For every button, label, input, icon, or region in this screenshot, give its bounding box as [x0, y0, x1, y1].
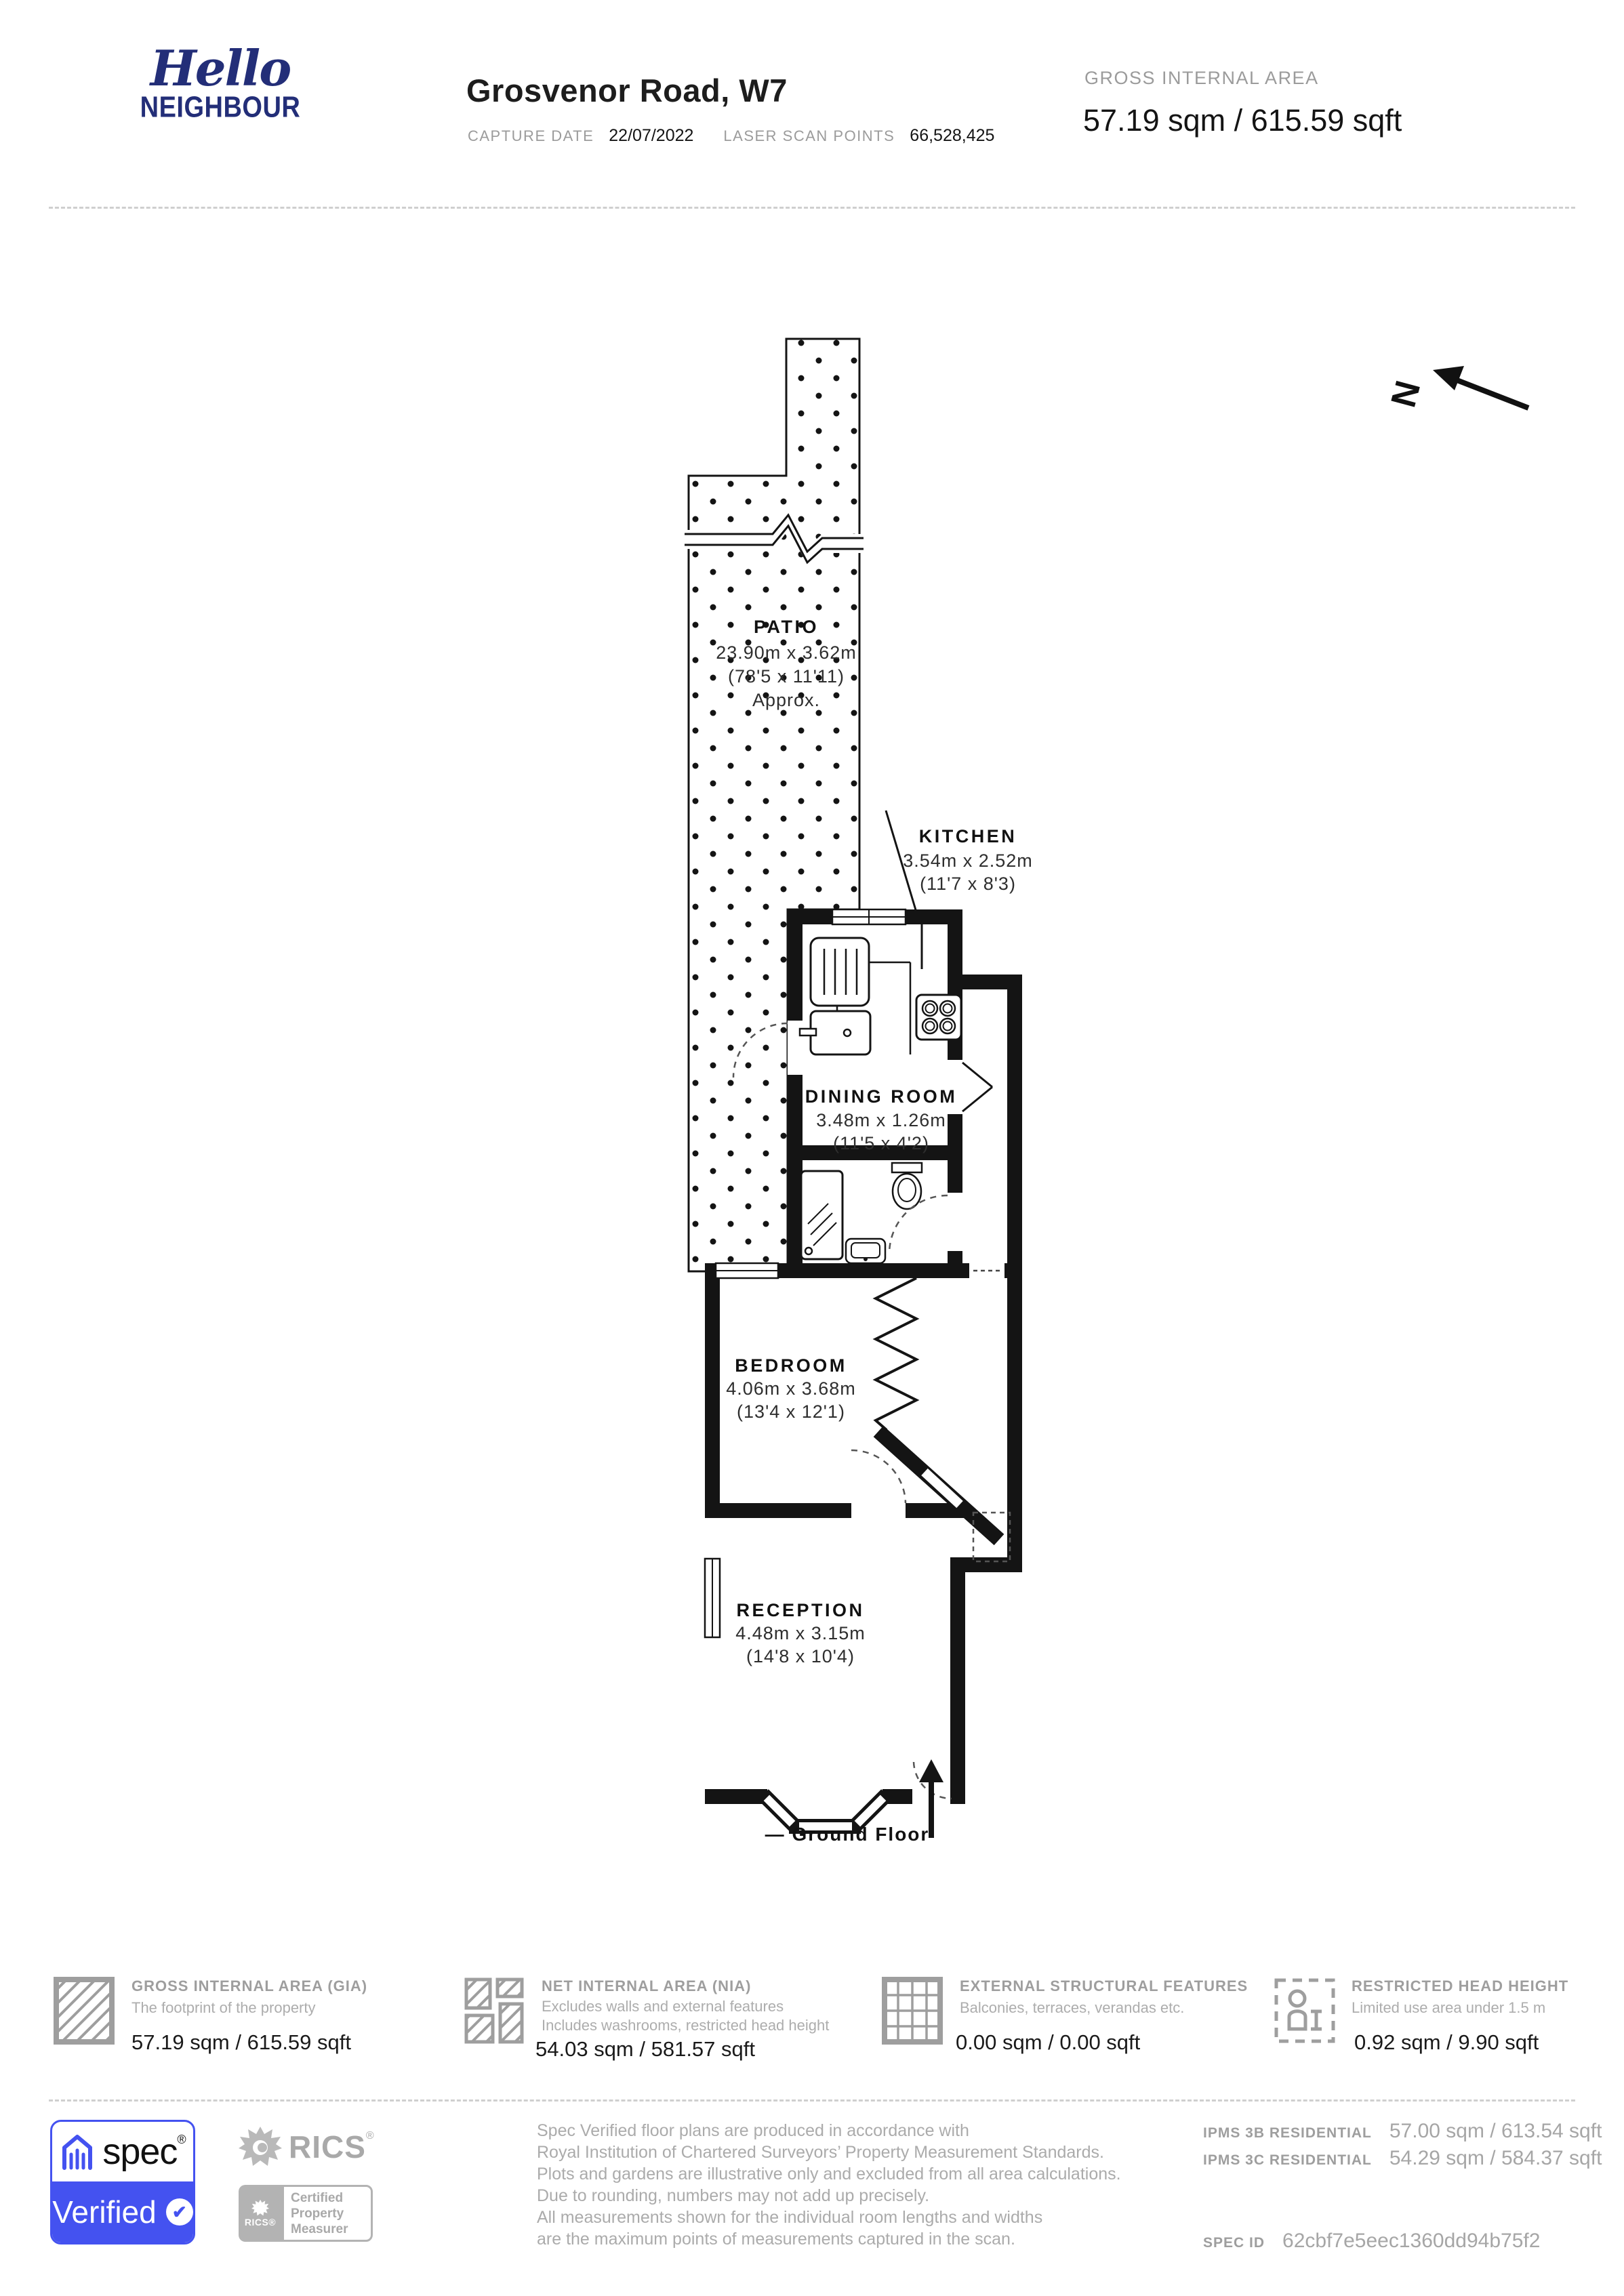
spec-id-label: SPEC ID	[1203, 2235, 1265, 2251]
ipms-3b-row: IPMS 3B RESIDENTIAL 57.00 sqm / 613.54 s…	[1203, 2120, 1602, 2143]
legend-nia-sub2: Includes washrooms, restricted head heig…	[542, 2017, 829, 2034]
gross-internal-area-value: 57.19 sqm / 615.59 sqft	[1083, 103, 1402, 138]
ipms-3c-label: IPMS 3C RESIDENTIAL	[1203, 2152, 1372, 2169]
legend-nia: NET INTERNAL AREA (NIA) Excludes walls a…	[463, 1976, 829, 2045]
legend-gia-title: GROSS INTERNAL AREA (GIA)	[131, 1977, 367, 1995]
kitchen-name: KITCHEN	[919, 826, 1017, 846]
disclaimer-line: are the maximum points of measurements c…	[537, 2228, 1121, 2250]
spec-reg-mark: ®	[177, 2133, 186, 2147]
laser-scan-value: 66,528,425	[910, 126, 994, 146]
rics-reg-mark: ®	[366, 2130, 374, 2142]
disclaimer-text: Spec Verified floor plans are produced i…	[537, 2120, 1121, 2250]
ipms-3c-value: 54.29 sqm / 584.37 sqft	[1389, 2147, 1602, 2170]
dining-imperial: (11'5 x 4'2)	[833, 1133, 929, 1153]
patio-metric: 23.90m x 3.62m	[716, 642, 857, 663]
rics-badge-brand: RICS®	[245, 2217, 276, 2228]
rics-certified-badge: RICS® Certified Property Measurer	[239, 2185, 401, 2242]
legend-rhh-value: 0.92 sqm / 9.90 sqft	[1354, 2030, 1539, 2055]
north-arrow: N	[1383, 347, 1552, 435]
patio-imperial: (78'5 x 11'11)	[728, 666, 845, 686]
legend-esf-sub: Balconies, terraces, verandas etc.	[960, 1999, 1248, 2017]
page-title: Grosvenor Road, W7	[466, 72, 788, 109]
rics-block: RICS ® RICS® Certified Property Measurer	[239, 2120, 401, 2242]
legend-nia-value: 54.03 sqm / 581.57 sqft	[535, 2037, 755, 2062]
spec-verified-text: Verified	[52, 2194, 156, 2230]
rics-badge-line1: Certified	[291, 2190, 371, 2206]
gross-internal-area-label: GROSS INTERNAL AREA	[1084, 68, 1319, 89]
bedroom-name: BEDROOM	[735, 1355, 847, 1376]
spec-id-row: SPEC ID 62cbf7e5eec1360dd94b75f2	[1203, 2230, 1540, 2253]
rics-badge-line3: Measurer	[291, 2221, 371, 2237]
capture-meta-row: CAPTURE DATE 22/07/2022 LASER SCAN POINT…	[468, 126, 994, 146]
floorplan-svg: PATIO 23.90m x 3.62m (78'5 x 11'11) Appr…	[644, 319, 1084, 1884]
dining-name: DINING ROOM	[805, 1086, 958, 1107]
legend-gia-value: 57.19 sqm / 615.59 sqft	[131, 2030, 351, 2055]
rics-badge-lion-icon	[251, 2199, 269, 2217]
legend-nia-sub1: Excludes walls and external features	[542, 1998, 829, 2015]
logo-neighbour-text: NEIGHBOUR	[129, 91, 312, 125]
logo-hello-text: Hello	[129, 45, 312, 92]
kitchen-metric: 3.54m x 2.52m	[903, 850, 1033, 871]
spec-house-icon	[59, 2133, 96, 2171]
legend-rhh-sub: Limited use area under 1.5 m	[1352, 1999, 1568, 2017]
esf-grid-icon	[881, 1976, 943, 2045]
laser-scan-label: LASER SCAN POINTS	[723, 127, 895, 145]
spec-id-value: 62cbf7e5eec1360dd94b75f2	[1282, 2230, 1540, 2253]
disclaimer-line: Royal Institution of Chartered Surveyors…	[537, 2141, 1121, 2163]
header-divider	[49, 207, 1575, 209]
legend-nia-title: NET INTERNAL AREA (NIA)	[542, 1977, 829, 1995]
bedroom-metric: 4.06m x 3.68m	[726, 1378, 856, 1399]
spec-brand-text: spec	[102, 2131, 177, 2173]
rics-brand-text: RICS	[289, 2129, 366, 2165]
north-label: N	[1384, 377, 1429, 411]
disclaimer-line: Plots and gardens are illustrative only …	[537, 2163, 1121, 2185]
ipms-3b-value: 57.00 sqm / 613.54 sqft	[1389, 2120, 1602, 2143]
hob-icon	[916, 995, 961, 1040]
legend-gia-sub: The footprint of the property	[131, 1999, 367, 2017]
rhh-person-icon	[1273, 1976, 1335, 2045]
legend-esf-value: 0.00 sqm / 0.00 sqft	[956, 2030, 1140, 2055]
shower-icon	[801, 1171, 843, 1259]
patio-note: Approx.	[752, 690, 820, 710]
hello-neighbour-logo: Hello NEIGHBOUR	[129, 45, 312, 123]
capture-date-label: CAPTURE DATE	[468, 127, 594, 145]
ipms-3c-row: IPMS 3C RESIDENTIAL 54.29 sqm / 584.37 s…	[1203, 2147, 1602, 2170]
toilet-icon	[892, 1163, 922, 1209]
dining-metric: 3.48m x 1.26m	[816, 1110, 946, 1130]
patio-name: PATIO	[754, 617, 819, 637]
reception-name: RECEPTION	[736, 1600, 864, 1620]
disclaimer-line: All measurements shown for the individua…	[537, 2207, 1121, 2228]
verified-check-icon: ✔	[166, 2198, 193, 2226]
spec-verified-badge: spec ® Verified ✔	[50, 2120, 195, 2244]
capture-date-value: 22/07/2022	[609, 126, 693, 146]
gia-hatch-icon	[53, 1976, 115, 2045]
legend-rhh-title: RESTRICTED HEAD HEIGHT	[1352, 1977, 1568, 1995]
rics-badge-line2: Property	[291, 2206, 371, 2221]
nia-maze-icon	[463, 1976, 525, 2045]
reception-metric: 4.48m x 3.15m	[735, 1623, 866, 1643]
basin-icon	[846, 1239, 885, 1263]
legend-esf-title: EXTERNAL STRUCTURAL FEATURES	[960, 1977, 1248, 1995]
reception-imperial: (14'8 x 10'4)	[746, 1646, 855, 1666]
bedroom-imperial: (13'4 x 12'1)	[737, 1401, 845, 1422]
disclaimer-line: Spec Verified floor plans are produced i…	[537, 2120, 1121, 2141]
disclaimer-line: Due to rounding, numbers may not add up …	[537, 2185, 1121, 2207]
kitchen-sink-icon	[800, 938, 870, 1054]
floor-label: — Ground Floor	[765, 1824, 930, 1845]
rics-lion-icon	[239, 2120, 282, 2174]
ipms-3b-label: IPMS 3B RESIDENTIAL	[1203, 2125, 1372, 2141]
footer-divider	[49, 2099, 1575, 2102]
kitchen-imperial: (11'7 x 8'3)	[920, 874, 1016, 894]
